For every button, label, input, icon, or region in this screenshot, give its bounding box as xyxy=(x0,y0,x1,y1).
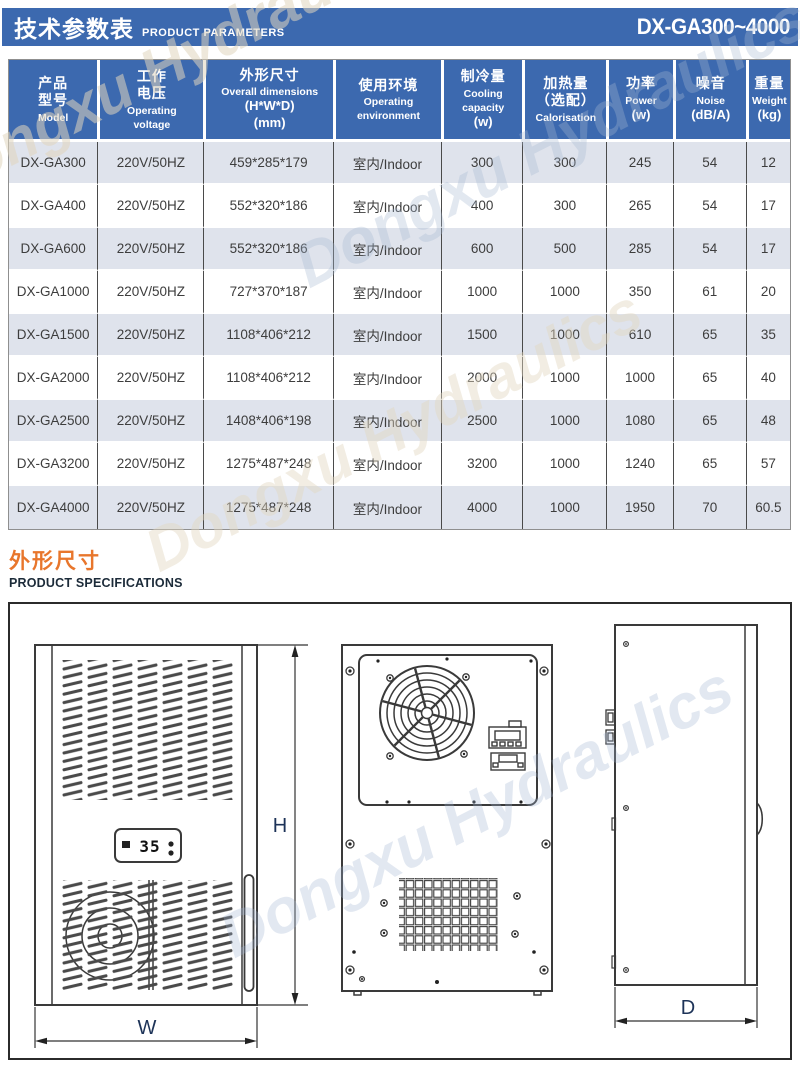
table-cell: 室内/Indoor xyxy=(333,400,441,443)
table-cell: DX-GA400 xyxy=(9,185,97,228)
table-cell: 2000 xyxy=(441,357,522,400)
table-cell: 1000 xyxy=(522,271,606,314)
table-cell: 室内/Indoor xyxy=(333,142,441,185)
table-cell: 220V/50HZ xyxy=(97,228,203,271)
table-cell: 1000 xyxy=(522,443,606,486)
side-view xyxy=(606,625,762,985)
dim-label-w: W xyxy=(138,1017,157,1039)
rear-view xyxy=(342,645,552,995)
table-row-DX-GA2000: DX-GA2000220V/50HZ1108*406*212室内/Indoor2… xyxy=(9,357,790,400)
display-button-icon xyxy=(168,850,173,855)
table-row-DX-GA1500: DX-GA1500220V/50HZ1108*406*212室内/Indoor1… xyxy=(9,314,790,357)
table-header-row: 产品型号Model工作电压Operatingvoltage外形尺寸Overall… xyxy=(9,60,790,142)
table-cell: 57 xyxy=(746,443,790,486)
table-cell: 265 xyxy=(606,185,672,228)
dimension-height: H xyxy=(257,645,308,1005)
column-header-text: 工作电压Operatingvoltage xyxy=(100,60,203,139)
table-cell: 552*320*186 xyxy=(203,228,332,271)
parameters-table-body: DX-GA300220V/50HZ459*285*179室内/Indoor300… xyxy=(9,142,790,529)
table-cell: 300 xyxy=(522,142,606,185)
dimension-width: W xyxy=(35,1007,257,1048)
top-header-bar: 技术参数表 PRODUCT PARAMETERS DX-GA300~4000 xyxy=(2,8,798,46)
section-title-zh: 外形尺寸 xyxy=(9,545,800,575)
table-cell: 1240 xyxy=(606,443,672,486)
table-cell: 40 xyxy=(746,357,790,400)
table-cell: 1080 xyxy=(606,400,672,443)
table-cell: 65 xyxy=(673,357,746,400)
dim-label-d: D xyxy=(681,997,695,1019)
column-header-6: 加热量（选配）Calorisation xyxy=(522,60,606,142)
dimension-depth: D xyxy=(615,987,757,1028)
technical-drawing: 35 xyxy=(10,604,789,1058)
bottom-louver-grille xyxy=(62,880,237,990)
dim-label-h: H xyxy=(273,815,287,837)
table-cell: 220V/50HZ xyxy=(97,185,203,228)
table-cell: 12 xyxy=(746,142,790,185)
column-header-9: 重量Weight(kg) xyxy=(746,60,790,142)
column-header-8: 噪音Noise(dB/A) xyxy=(673,60,746,142)
table-cell: 1000 xyxy=(522,400,606,443)
table-cell: 1000 xyxy=(522,486,606,529)
table-cell: 350 xyxy=(606,271,672,314)
model-range-label: DX-GA300~4000 xyxy=(637,14,790,40)
table-cell: DX-GA300 xyxy=(9,142,97,185)
table-cell: 60.5 xyxy=(746,486,790,529)
table-cell: 500 xyxy=(522,228,606,271)
table-cell: 220V/50HZ xyxy=(97,357,203,400)
table-cell: 室内/Indoor xyxy=(333,228,441,271)
table-cell: DX-GA2500 xyxy=(9,400,97,443)
display-value: 35 xyxy=(139,837,160,856)
table-cell: 室内/Indoor xyxy=(333,271,441,314)
table-cell: 室内/Indoor xyxy=(333,443,441,486)
table-cell: 65 xyxy=(673,443,746,486)
table-cell: 1000 xyxy=(606,357,672,400)
table-cell: 2500 xyxy=(441,400,522,443)
table-cell: 1000 xyxy=(441,271,522,314)
table-row-DX-GA4000: DX-GA4000220V/50HZ1275*487*248室内/Indoor4… xyxy=(9,486,790,529)
table-cell: DX-GA1500 xyxy=(9,314,97,357)
column-header-text: 功率Power(w) xyxy=(609,60,672,139)
product-drawings-panel: 35 xyxy=(8,602,792,1060)
table-cell: DX-GA1000 xyxy=(9,271,97,314)
parameters-table: 产品型号Model工作电压Operatingvoltage外形尺寸Overall… xyxy=(8,59,791,530)
column-header-text: 重量Weight(kg) xyxy=(749,60,790,139)
table-cell: 65 xyxy=(673,400,746,443)
page-title-zh: 技术参数表 xyxy=(14,10,134,44)
column-header-text: 加热量（选配）Calorisation xyxy=(525,60,606,139)
table-cell: 220V/50HZ xyxy=(97,400,203,443)
bottom-vent-grille xyxy=(399,878,498,951)
table-cell: DX-GA2000 xyxy=(9,357,97,400)
table-cell: 室内/Indoor xyxy=(333,314,441,357)
table-cell: 35 xyxy=(746,314,790,357)
table-row-DX-GA2500: DX-GA2500220V/50HZ1408*406*198室内/Indoor2… xyxy=(9,400,790,443)
column-header-text: 产品型号Model xyxy=(9,60,97,139)
table-cell: 1500 xyxy=(441,314,522,357)
table-cell: 220V/50HZ xyxy=(97,142,203,185)
section-heading: 外形尺寸 PRODUCT SPECIFICATIONS xyxy=(9,545,800,590)
table-cell: 610 xyxy=(606,314,672,357)
table-row-DX-GA400: DX-GA400220V/50HZ552*320*186室内/Indoor400… xyxy=(9,185,790,228)
table-cell: 459*285*179 xyxy=(203,142,332,185)
table-cell: 54 xyxy=(673,185,746,228)
table-cell: DX-GA4000 xyxy=(9,486,97,529)
table-cell: 727*370*187 xyxy=(203,271,332,314)
table-cell: 300 xyxy=(522,185,606,228)
table-row-DX-GA600: DX-GA600220V/50HZ552*320*186室内/Indoor600… xyxy=(9,228,790,271)
table-cell: 1000 xyxy=(522,357,606,400)
table-cell: 61 xyxy=(673,271,746,314)
table-cell: 室内/Indoor xyxy=(333,185,441,228)
table-cell: 220V/50HZ xyxy=(97,443,203,486)
table-cell: 1275*487*248 xyxy=(203,486,332,529)
table-cell: 220V/50HZ xyxy=(97,314,203,357)
table-cell: DX-GA3200 xyxy=(9,443,97,486)
top-louver-grille xyxy=(62,660,237,800)
column-header-7: 功率Power(w) xyxy=(606,60,672,142)
column-header-text: 噪音Noise(dB/A) xyxy=(676,60,746,139)
table-cell: 4000 xyxy=(441,486,522,529)
table-cell: 48 xyxy=(746,400,790,443)
side-connectors xyxy=(606,710,615,744)
table-row-DX-GA1000: DX-GA1000220V/50HZ727*370*187室内/Indoor10… xyxy=(9,271,790,314)
table-cell: 1108*406*212 xyxy=(203,314,332,357)
table-cell: 17 xyxy=(746,228,790,271)
table-row-DX-GA3200: DX-GA3200220V/50HZ1275*487*248室内/Indoor3… xyxy=(9,443,790,486)
display-button-icon xyxy=(168,841,173,846)
table-cell: 285 xyxy=(606,228,672,271)
table-cell: DX-GA600 xyxy=(9,228,97,271)
table-cell: 1408*406*198 xyxy=(203,400,332,443)
table-row-DX-GA300: DX-GA300220V/50HZ459*285*179室内/Indoor300… xyxy=(9,142,790,185)
column-header-text: 使用环境Operatingenvironment xyxy=(336,60,441,139)
front-view: 35 xyxy=(35,645,257,1005)
table-cell: 1000 xyxy=(522,314,606,357)
table-cell: 1950 xyxy=(606,486,672,529)
table-cell: 17 xyxy=(746,185,790,228)
table-cell: 20 xyxy=(746,271,790,314)
table-cell: 1108*406*212 xyxy=(203,357,332,400)
parameters-table-head: 产品型号Model工作电压Operatingvoltage外形尺寸Overall… xyxy=(9,60,790,142)
spec-sheet-page: Dongxu Hydraulics Dongxu Hydraulics Dong… xyxy=(0,0,800,1082)
table-cell: 54 xyxy=(673,228,746,271)
page-title-en: PRODUCT PARAMETERS xyxy=(142,27,285,39)
table-cell: 室内/Indoor xyxy=(333,357,441,400)
table-cell: 552*320*186 xyxy=(203,185,332,228)
section-title-en: PRODUCT SPECIFICATIONS xyxy=(9,576,800,590)
table-cell: 300 xyxy=(441,142,522,185)
temperature-display: 35 xyxy=(115,829,181,862)
column-header-text: 制冷量Coolingcapacity(w) xyxy=(444,60,522,139)
table-cell: 室内/Indoor xyxy=(333,486,441,529)
table-cell: 245 xyxy=(606,142,672,185)
table-cell: 3200 xyxy=(441,443,522,486)
table-cell: 54 xyxy=(673,142,746,185)
table-cell: 65 xyxy=(673,314,746,357)
table-cell: 600 xyxy=(441,228,522,271)
column-header-2: 工作电压Operatingvoltage xyxy=(97,60,203,142)
table-cell: 400 xyxy=(441,185,522,228)
column-header-text: 外形尺寸Overall dimensions(H*W*D)(mm) xyxy=(206,60,332,139)
door-handle xyxy=(245,875,254,991)
column-header-5: 制冷量Coolingcapacity(w) xyxy=(441,60,522,142)
column-header-3: 外形尺寸Overall dimensions(H*W*D)(mm) xyxy=(203,60,332,142)
table-cell: 70 xyxy=(673,486,746,529)
column-header-1: 产品型号Model xyxy=(9,60,97,142)
table-cell: 1275*487*248 xyxy=(203,443,332,486)
table-cell: 220V/50HZ xyxy=(97,486,203,529)
column-header-4: 使用环境Operatingenvironment xyxy=(333,60,441,142)
table-cell: 220V/50HZ xyxy=(97,271,203,314)
